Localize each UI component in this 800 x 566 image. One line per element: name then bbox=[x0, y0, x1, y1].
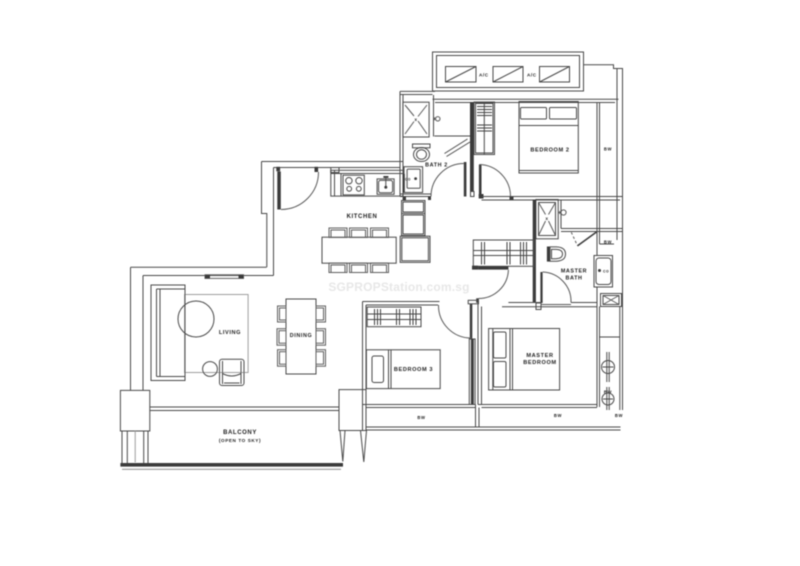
svg-text:BEDROOM 2: BEDROOM 2 bbox=[530, 148, 569, 154]
svg-text:x: x bbox=[545, 216, 548, 221]
svg-text:BEDROOM: BEDROOM bbox=[523, 360, 556, 366]
svg-text:x: x bbox=[414, 117, 417, 122]
svg-text:BATH 2: BATH 2 bbox=[425, 163, 448, 169]
svg-text:SGPROPStation.com.sg: SGPROPStation.com.sg bbox=[328, 280, 469, 294]
svg-text:LIVING: LIVING bbox=[219, 330, 241, 336]
svg-text:BALCONY: BALCONY bbox=[223, 430, 257, 436]
svg-text:BW: BW bbox=[604, 240, 612, 245]
svg-text:CO: CO bbox=[405, 177, 411, 181]
svg-text:DINING: DINING bbox=[290, 333, 312, 339]
svg-text:BW: BW bbox=[417, 415, 425, 420]
svg-text:BATH: BATH bbox=[566, 276, 583, 282]
svg-text:BW: BW bbox=[615, 413, 623, 418]
svg-text:BW: BW bbox=[604, 147, 612, 152]
svg-text:BW: BW bbox=[554, 413, 562, 418]
svg-text:A/C: A/C bbox=[479, 73, 489, 78]
svg-text:MASTER: MASTER bbox=[526, 353, 553, 359]
svg-text:KITCHEN: KITCHEN bbox=[347, 214, 378, 220]
svg-text:MASTER: MASTER bbox=[561, 269, 587, 275]
svg-text:(OPEN TO SKY): (OPEN TO SKY) bbox=[219, 438, 261, 443]
svg-text:CO: CO bbox=[603, 270, 609, 274]
svg-text:BEDROOM 3: BEDROOM 3 bbox=[394, 367, 433, 373]
svg-text:A/C: A/C bbox=[527, 73, 537, 78]
